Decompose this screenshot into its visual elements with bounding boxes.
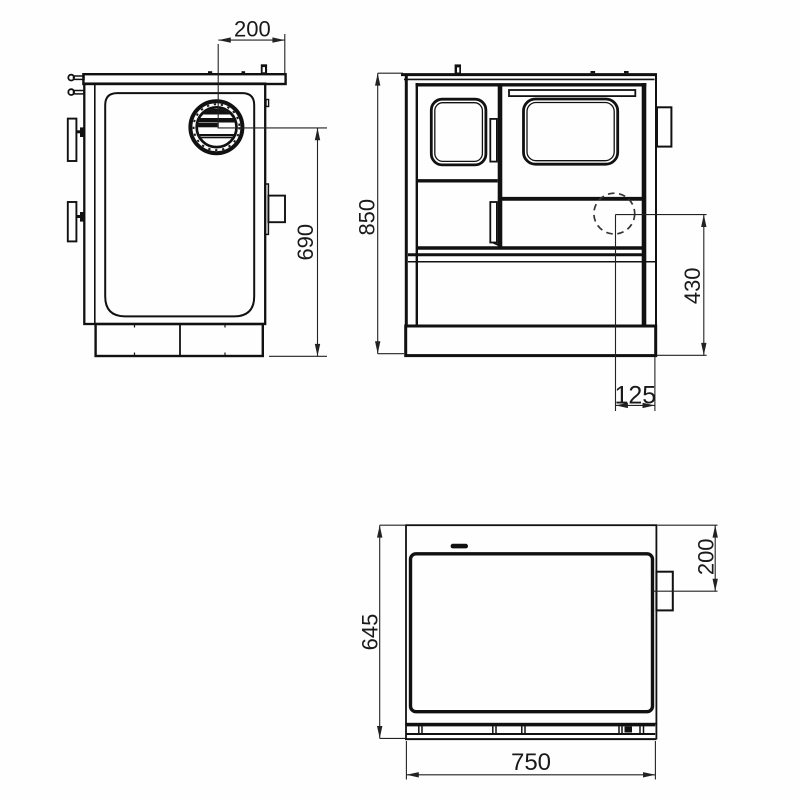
svg-text:200: 200 (694, 538, 719, 575)
svg-text:850: 850 (354, 199, 379, 236)
svg-text:645: 645 (358, 614, 383, 651)
svg-text:125: 125 (614, 382, 656, 410)
svg-text:690: 690 (293, 224, 318, 261)
svg-text:750: 750 (511, 749, 551, 776)
svg-text:430: 430 (680, 267, 705, 304)
svg-text:200: 200 (234, 17, 271, 42)
